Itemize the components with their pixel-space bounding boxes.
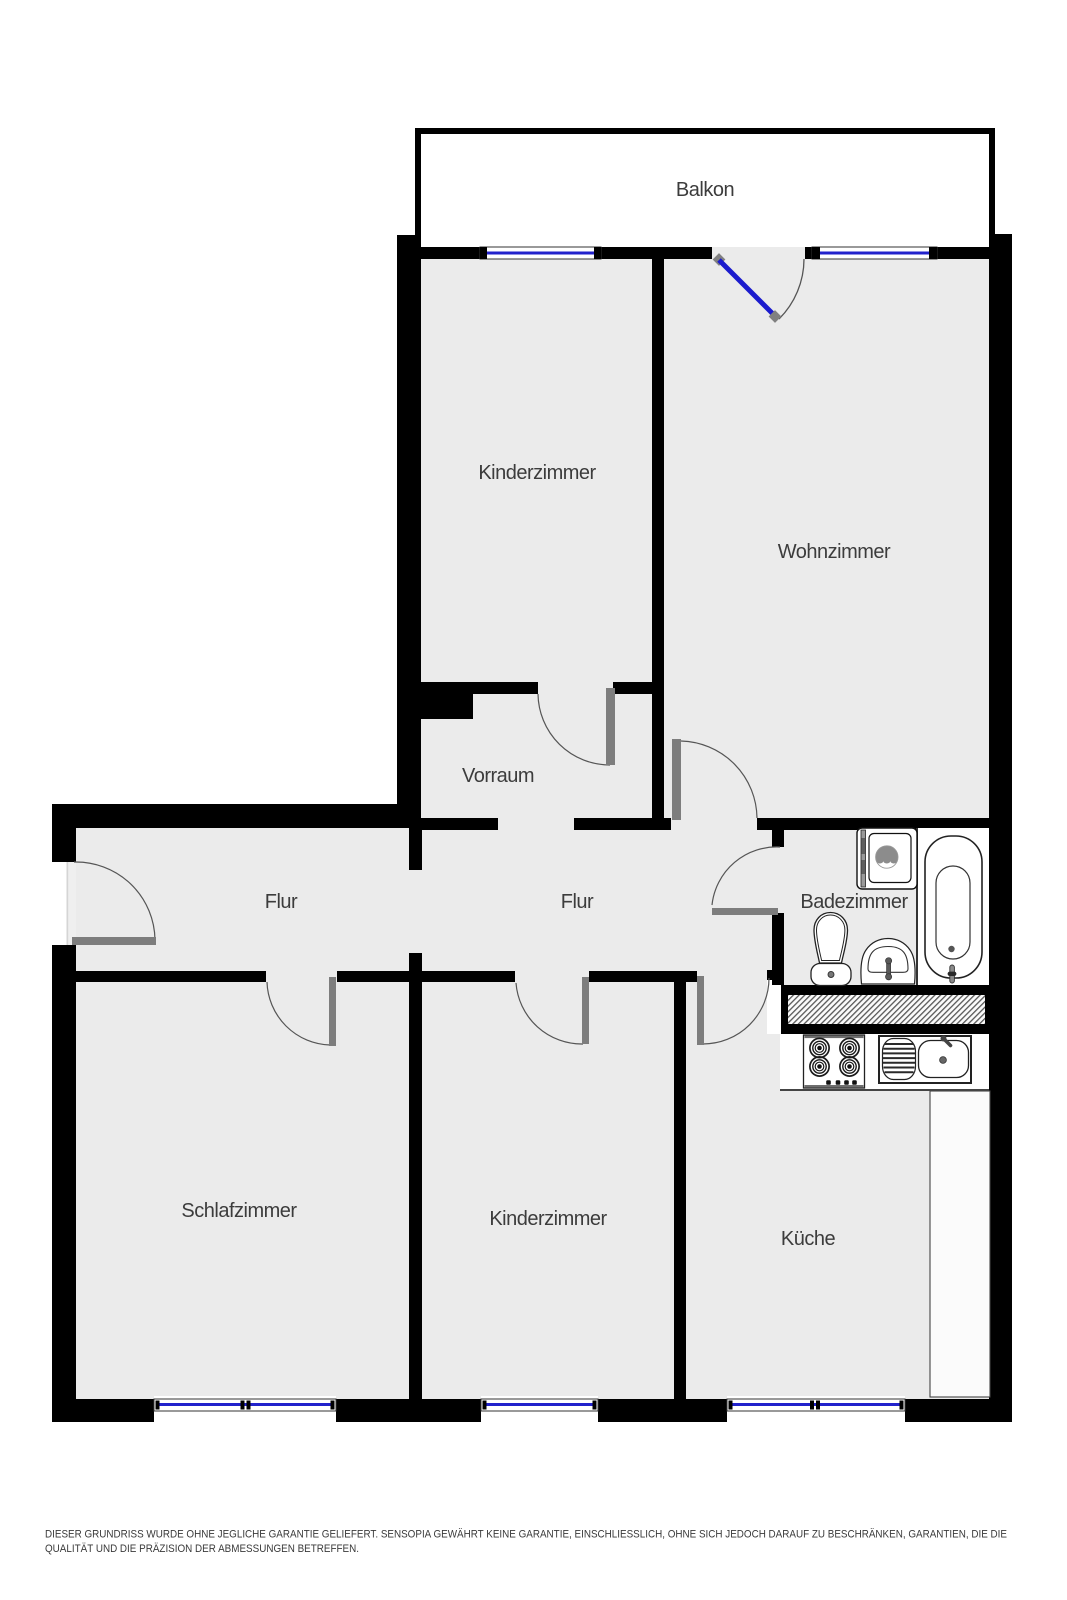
svg-text:Badezimmer: Badezimmer (800, 891, 908, 913)
svg-text:Balkon: Balkon (676, 179, 734, 201)
svg-text:Küche: Küche (781, 1228, 836, 1250)
svg-text:QUALITÄT UND DIE PRÄZISION DER: QUALITÄT UND DIE PRÄZISION DER ABMESSUNG… (45, 1543, 359, 1555)
svg-text:Schlafzimmer: Schlafzimmer (181, 1200, 297, 1222)
svg-text:Flur: Flur (265, 891, 298, 913)
svg-text:DIESER GRUNDRISS WURDE OHNE JE: DIESER GRUNDRISS WURDE OHNE JEGLICHE GAR… (45, 1529, 1007, 1541)
svg-text:Kinderzimmer: Kinderzimmer (489, 1208, 607, 1230)
svg-text:Wohnzimmer: Wohnzimmer (778, 541, 891, 563)
svg-text:Flur: Flur (561, 891, 594, 913)
svg-text:Vorraum: Vorraum (462, 765, 534, 787)
svg-text:Kinderzimmer: Kinderzimmer (478, 462, 596, 484)
